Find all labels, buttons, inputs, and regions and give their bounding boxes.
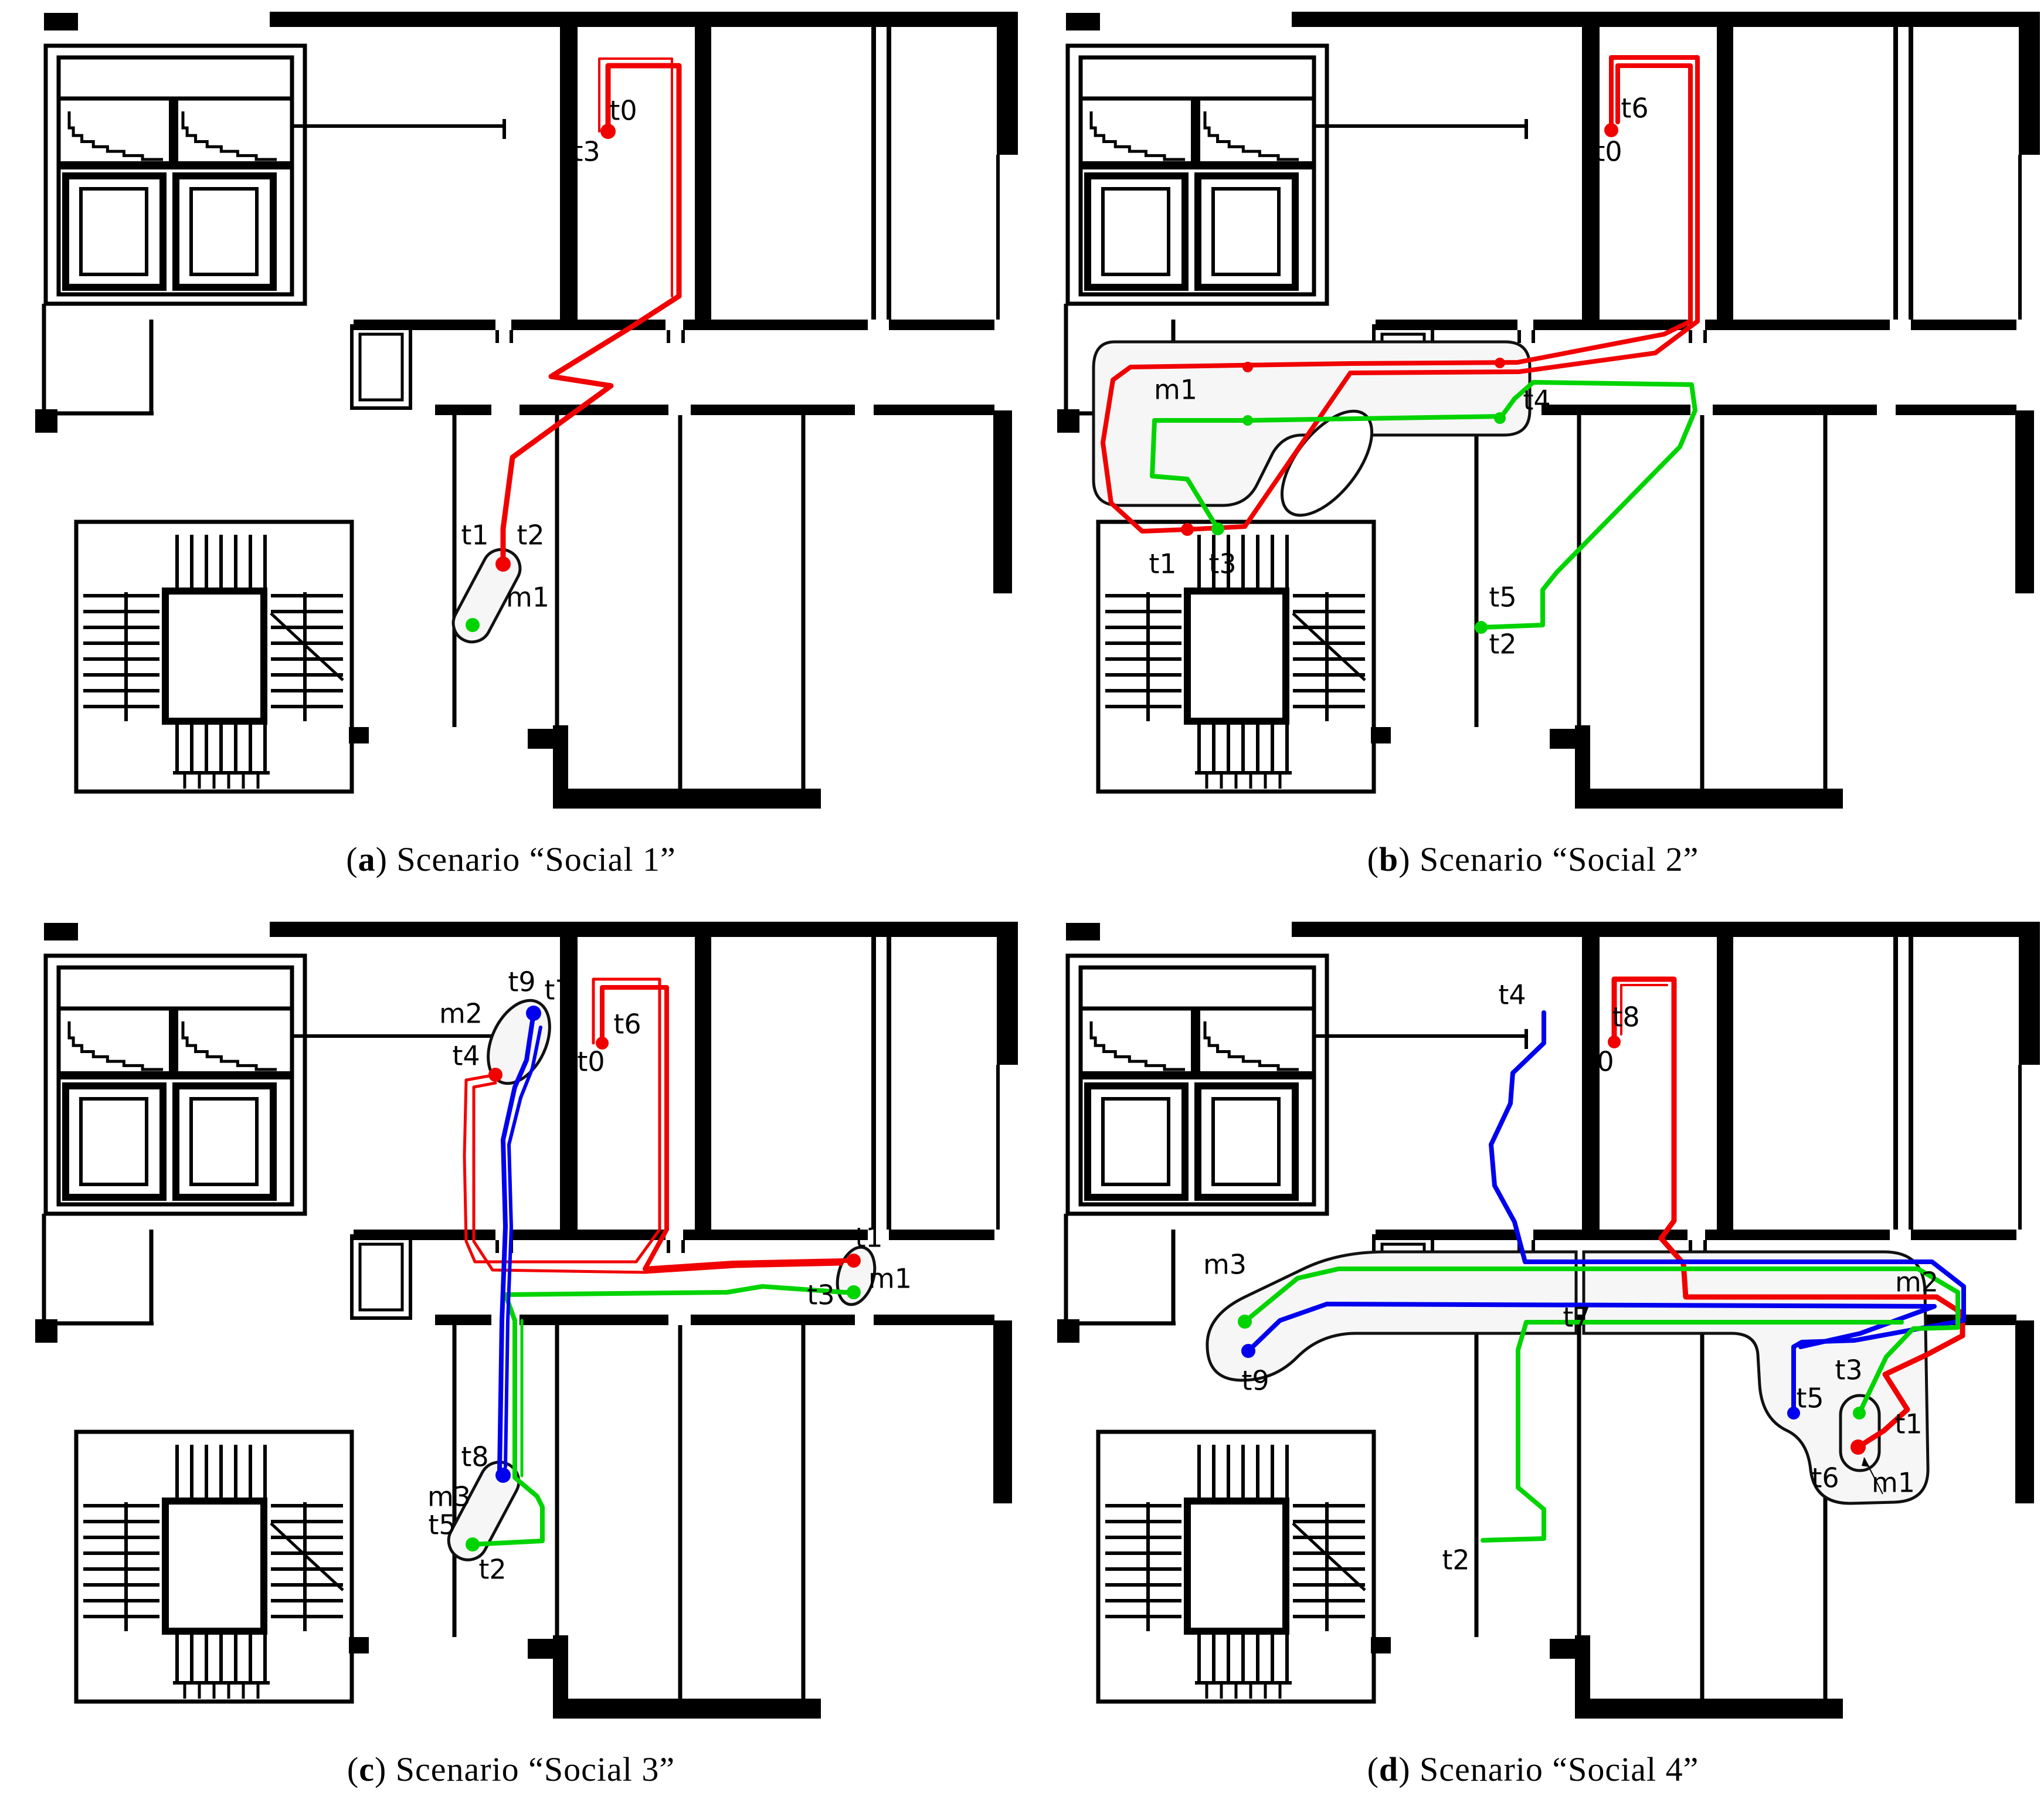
label-t9: t9 [1241,1365,1269,1397]
wall [528,1639,555,1659]
wall [1911,320,2016,330]
caption-text: Scenario “Social 2” [1420,840,1699,878]
stair-flight [69,111,163,159]
caption-text: Scenario “Social 1” [396,840,675,878]
waypoint-dot-red [1242,362,1253,372]
wall [435,1315,491,1325]
caption-letter: d [1379,1750,1398,1788]
caption-letter: b [1379,840,1398,878]
wall-outline [360,334,402,400]
label-t1: t1 [1894,1408,1922,1440]
caption-paren: ( [1367,840,1379,878]
wall [889,320,994,330]
waypoint-dot-blue [495,1468,511,1483]
wall [520,1315,668,1325]
wall [1705,320,1890,330]
stair-flight [1205,1021,1299,1069]
wall [270,922,997,937]
wall-outline [1103,1099,1169,1184]
label-m1: m1 [868,1263,912,1295]
wall [1896,405,2016,415]
wall [1911,1230,2016,1240]
wall [695,26,711,320]
scenario-plot-a: t0t3t1t2m1 [0,0,1022,838]
panel-c: t9t7m2t4t6t0t1t3m1t8m3t5t2 (c) Scenario … [0,910,1022,1820]
wall [2015,410,2034,593]
label-t8: t8 [461,1441,488,1473]
panel-d: t4t8t0m3t9t7m2t5t3t1t6m1t2 (d) Scenario … [1022,910,2044,1820]
wall [2019,922,2040,1065]
label-t0: t0 [1594,136,1622,168]
label-t7: t7 [1563,1302,1590,1333]
caption-paren: ( [346,840,358,878]
stair-flight [1091,111,1185,159]
label-t3: t3 [1208,548,1236,580]
labels: t0t3t1t2m1 [461,95,637,613]
label-t7: t7 [544,974,572,1006]
wall [1550,1639,1577,1659]
wall [691,1315,855,1325]
caption-letter: a [358,840,376,878]
waypoint-dot-red [1181,523,1194,536]
waypoint-dot-green [1242,415,1253,426]
stair-flight [1091,1021,1185,1069]
wall-outline [76,1432,352,1702]
wall [554,1699,821,1719]
waypoint-dot-green [1494,412,1506,424]
figure-social-scenarios: t0t3t1t2m1 (a) Scenario “Social 1” t6t0m… [0,0,2044,1820]
floorplan [35,12,1018,809]
label-t3: t3 [1835,1354,1862,1386]
label-m3: m3 [1203,1249,1247,1281]
wall [520,405,668,415]
wall [683,1230,868,1240]
wall-outline [81,189,147,274]
wall [2015,1320,2034,1503]
label-m1: m1 [1154,374,1197,406]
label-t4: t4 [452,1040,480,1072]
label-t6: t6 [1811,1462,1839,1494]
label-t0: t0 [1586,1046,1614,1078]
trajectories [503,59,679,563]
label-t1: t1 [461,519,488,551]
label-m1: m1 [506,582,549,613]
waypoint-dot-red [1851,1439,1866,1455]
waypoint-dot-red [847,1254,861,1268]
wall [169,1009,178,1074]
waypoint-dot-green [847,1285,861,1299]
wall [1705,1230,1890,1240]
wall-outline [1098,1432,1374,1702]
wall [1066,13,1100,30]
wall [691,405,855,415]
wall [1576,1699,1843,1719]
label-t0: t0 [609,95,637,127]
waypoint-dot-blue [526,1006,541,1021]
wall [1717,936,1733,1230]
scenario-plot-c: t9t7m2t4t6t0t1t3m1t8m3t5t2 [0,910,1022,1748]
label-t5: t5 [1796,1383,1824,1414]
wall [554,789,821,809]
label-t6: t6 [613,1009,641,1040]
waypoint-dot-green [466,618,480,632]
wall [1713,405,1877,415]
stair-flight [69,1021,163,1069]
wall-outline [76,522,352,792]
wall [1550,729,1577,749]
scenario-plot-d: t4t8t0m3t9t7m2t5t3t1t6m1t2 [1022,910,2044,1748]
wall-outline [165,591,264,721]
wall [695,936,711,1230]
wall [1191,1009,1200,1074]
label-m2: m2 [1895,1266,1938,1298]
wall-outline [191,1099,257,1184]
wall [997,922,1018,1065]
label-t4: t4 [1498,979,1526,1011]
wall-outline [1187,591,1286,721]
label-t5: t5 [1489,582,1516,613]
label-t6: t6 [1621,93,1648,124]
wall [1717,26,1733,320]
wall [1292,922,2019,937]
wall [1576,789,1843,809]
wall [528,729,555,749]
stair-flight [183,1021,277,1069]
wall [270,12,997,27]
stair-flight [1205,111,1299,159]
label-t2: t2 [478,1554,506,1585]
waypoint-dot-red [1604,123,1618,137]
waypoint-dot-red [1495,358,1505,368]
waypoint-dot-green [1853,1407,1866,1420]
caption-b: (b) Scenario “Social 2” [1022,840,2044,879]
waypoint-dot-blue [1241,1344,1255,1358]
wall [1582,936,1600,1230]
wall [2019,12,2040,155]
caption-paren: ) [1398,840,1410,878]
wall-outline [191,189,257,274]
wall [44,923,78,940]
wall [874,405,994,415]
label-t3: t3 [572,136,600,168]
caption-letter: c [359,1750,375,1788]
caption-d: (d) Scenario “Social 4” [1022,1750,2044,1789]
wall [1066,923,1100,940]
caption-paren: ( [1367,1750,1379,1788]
label-t2: t2 [1442,1544,1469,1576]
label-t2: t2 [517,519,544,551]
wall [889,1230,994,1240]
caption-paren: ) [1398,1750,1410,1788]
label-t9: t9 [508,966,535,998]
label-m1: m1 [1872,1467,1915,1499]
wall-outline [1213,1099,1279,1184]
wall [560,26,578,320]
waypoint-dot-green [1211,522,1224,535]
wall [511,1230,666,1240]
caption-c: (c) Scenario “Social 3” [0,1750,1022,1789]
wall [1292,12,2019,27]
label-t3: t3 [807,1279,834,1311]
wall-outline [1213,189,1279,274]
wall-outline [81,1099,147,1184]
wall [44,13,78,30]
trajectories [464,979,854,1544]
label-t5: t5 [428,1509,456,1541]
panel-a: t0t3t1t2m1 (a) Scenario “Social 1” [0,0,1022,910]
caption-text: Scenario “Social 3” [396,1750,675,1788]
wall-outline [360,1244,402,1310]
label-t1: t1 [855,1222,882,1254]
wall [993,1320,1012,1503]
wall [435,405,491,415]
waypoint-dot-red [488,1068,502,1082]
wall [1191,99,1200,164]
wall [169,99,178,164]
label-m3: m3 [427,1481,471,1513]
wall-outline [1103,189,1169,274]
wall [993,410,1012,593]
label-t8: t8 [1612,1001,1639,1033]
label-m2: m2 [439,998,483,1030]
wall-outline [165,1501,264,1631]
caption-paren: ) [376,840,388,878]
wall [997,12,1018,155]
caption-paren: ( [347,1750,359,1788]
caption-a: (a) Scenario “Social 1” [0,840,1022,879]
label-t4: t4 [1523,385,1550,416]
stair-flight [183,111,277,159]
caption-text: Scenario “Social 4” [1420,1750,1699,1788]
wall [1533,320,1688,330]
scenario-plot-b: t6t0m1t4t1t3t5t2 [1022,0,2044,838]
wall [1582,26,1600,320]
waypoint-dot-green [1238,1315,1252,1329]
wall [683,320,868,330]
waypoint-dot-green [1475,621,1488,634]
label-t1: t1 [1149,548,1176,580]
wall [874,1315,994,1325]
caption-paren: ) [375,1750,386,1788]
wall [1542,405,1690,415]
waypoint-dot-red [495,556,511,572]
wall-outline [1187,1501,1286,1631]
label-t2: t2 [1489,629,1516,660]
label-t0: t0 [577,1046,605,1078]
waypoint-dot-green [466,1537,480,1551]
panel-b: t6t0m1t4t1t3t5t2 (b) Scenario “Social 2” [1022,0,2044,910]
